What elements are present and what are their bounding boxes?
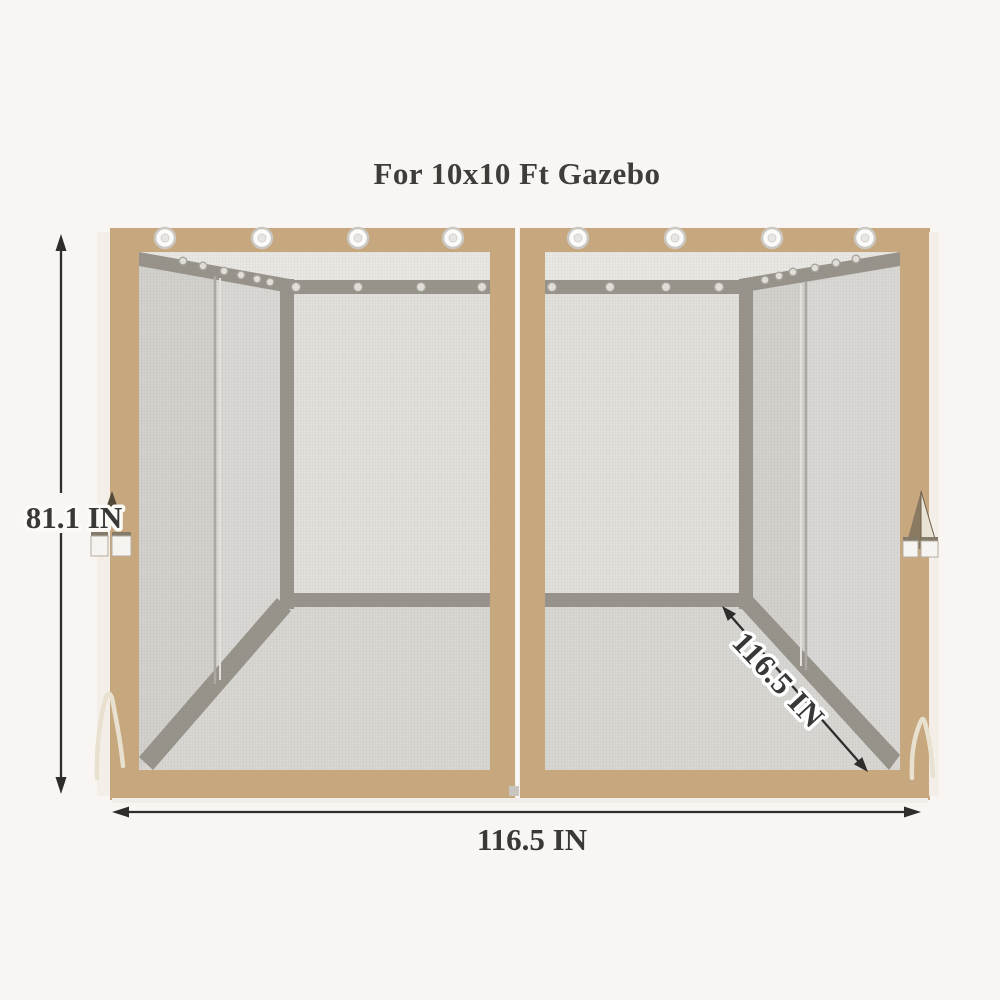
product-diagram: For 10x10 Ft Gazebo: [0, 0, 1000, 1000]
right-clip: [903, 541, 918, 557]
grommet: [348, 228, 368, 249]
left-mesh-panel: [97, 228, 515, 800]
grommet: [155, 228, 175, 249]
right-mesh-panel: [520, 228, 939, 800]
height-dimension-label: 81.1 IN: [26, 500, 122, 535]
bottom-fabric-hem: [112, 798, 928, 803]
gazebo-netting-illustration: For 10x10 Ft Gazebo: [0, 0, 1000, 1000]
right-fabric-edge: [929, 232, 939, 796]
left-mesh-texture: [139, 252, 490, 770]
grommet: [762, 228, 782, 249]
grommet: [568, 228, 588, 249]
grommet: [665, 228, 685, 249]
page-title: For 10x10 Ft Gazebo: [373, 156, 660, 191]
grommet: [855, 228, 875, 249]
grommet: [252, 228, 272, 249]
grommet: [443, 228, 463, 249]
left-clip: [112, 536, 131, 556]
right-clip: [921, 541, 938, 557]
left-clip: [91, 536, 108, 556]
right-mesh-texture: [545, 252, 900, 770]
seam-bottom-tab: [509, 786, 519, 796]
width-dimension-label: 116.5 IN: [477, 822, 587, 857]
